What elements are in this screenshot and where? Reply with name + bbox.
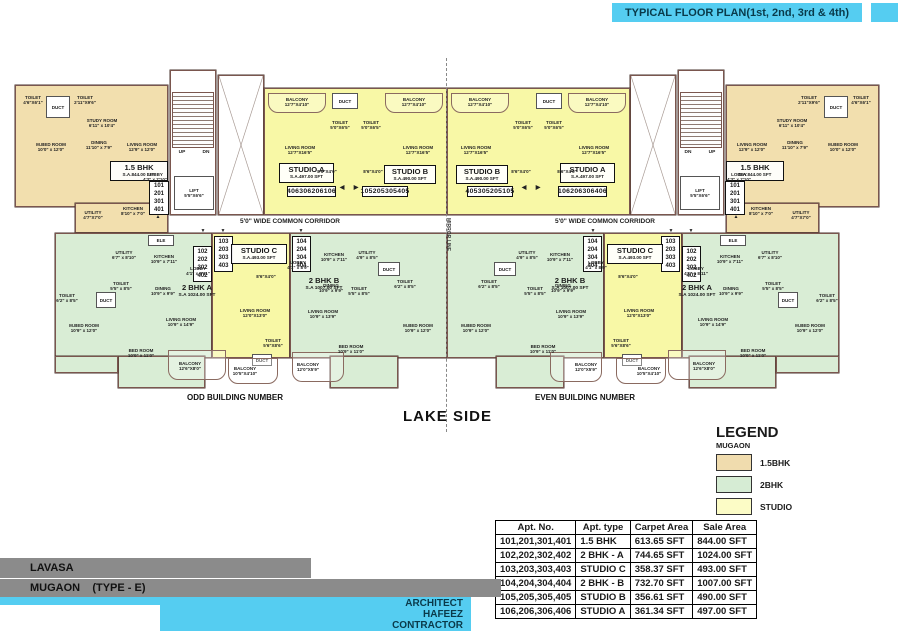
- room-label: M.BED ROOM 10'0" x 12'0": [28, 142, 74, 152]
- room-label: KITCHEN 10'9" x 7'11": [142, 254, 186, 264]
- room-label: BALCONY 12'7"X4'10": [268, 97, 326, 107]
- room-label: 8'6"X4'0": [508, 169, 534, 174]
- room-label: BALCONY 12'0"X5'9": [566, 362, 606, 372]
- room-label: BED ROOM 10'9" x 11'0": [328, 344, 374, 354]
- room-label: ▼: [684, 228, 698, 234]
- legend-label: 1.5BHK: [760, 458, 790, 468]
- room-label: STUDY ROOM 6'11" x 10'4": [80, 118, 124, 128]
- room-label: UTILITY 4'7"X7'0": [76, 210, 110, 220]
- room-label: KITCHEN 8'10" x 7'0": [110, 206, 156, 216]
- odd-building-label: ODD BUILDING NUMBER: [150, 393, 320, 402]
- model-bar: MUGAON (TYPE - E): [0, 579, 501, 597]
- room-label: TOILET 6'2" x 8'5": [472, 279, 506, 289]
- duct: DUCT: [46, 96, 70, 118]
- duct: DUCT: [536, 93, 562, 109]
- room-label: KITCHEN 10'9" x 7'11": [708, 254, 752, 264]
- legend-subheading: MUGAON: [716, 441, 779, 450]
- table-cell: 744.65 SFT: [630, 549, 693, 563]
- unit-title-studio-b: STUDIO B S.A.490.00 SFT: [456, 165, 508, 184]
- table-row: 101,201,301,4011.5 BHK613.65 SFT844.00 S…: [496, 535, 757, 549]
- room-label: 8'6"X4'0": [252, 274, 280, 279]
- duct: DUCT: [378, 262, 400, 276]
- table-cell: 105,205,305,405: [496, 591, 576, 605]
- table-cell: 101,201,301,401: [496, 535, 576, 549]
- room-label: LIVING ROOM 12'9" x 12'0": [728, 142, 776, 152]
- room-label: ▲: [152, 214, 164, 220]
- room-label: TOILET 5'0"X6'5": [507, 120, 539, 130]
- table-row: 105,205,305,405STUDIO B356.61 SFT490.00 …: [496, 591, 757, 605]
- room-label: ▼: [664, 228, 678, 234]
- stairs-left: [172, 92, 214, 148]
- lift: LIFT 5'5"X6'6": [174, 176, 214, 210]
- room-label: LIVING ROOM 12'0"X13'0": [616, 308, 662, 318]
- room-label: TOILET 5'0"X6'5": [324, 120, 356, 130]
- table-header-cell: Apt. type: [576, 521, 630, 535]
- table-cell: STUDIO A: [576, 605, 630, 619]
- room-label: TOILET 2'11"X9'6": [70, 95, 100, 105]
- room-label: ▼: [196, 228, 210, 234]
- table-cell: 613.65 SFT: [630, 535, 693, 549]
- room-label: TOILET 4'6"X6'1": [18, 95, 48, 105]
- table-cell: STUDIO C: [576, 563, 630, 577]
- room-label: BALCONY 12'0"X5'9": [288, 362, 328, 372]
- table-cell: STUDIO B: [576, 591, 630, 605]
- apartment-table-head: Apt. No.Apt. typeCarpet AreaSale Area: [496, 521, 757, 535]
- duct: DUCT: [778, 292, 798, 308]
- room-label: DINING 11'10" x 7'9": [776, 140, 814, 150]
- unit-stack: 103 203 303 403: [661, 236, 680, 272]
- shaft-right: [630, 75, 676, 215]
- room-label: ▼: [294, 228, 308, 234]
- room-label: LIVING ROOM 12'7"X16'5": [394, 145, 442, 155]
- room-label: ▼: [216, 228, 230, 234]
- mbed-bump: [55, 356, 118, 373]
- unit-number-strip: 406306206106: [287, 186, 336, 197]
- room-label: UTILITY 6'7" x 8'10": [106, 250, 142, 260]
- legend-label: STUDIO: [760, 502, 792, 512]
- room-label: ▶: [350, 185, 362, 192]
- legend: LEGEND MUGAON 1.5BHK2BHKSTUDIO: [716, 425, 779, 520]
- legend-heading: LEGEND: [716, 425, 779, 441]
- table-cell: 356.61 SFT: [630, 591, 693, 605]
- table-row: 102,202,302,4022 BHK - A744.65 SFT1024.0…: [496, 549, 757, 563]
- room-label: M.BED ROOM 10'0" x 12'0": [820, 142, 866, 152]
- room-label: 8'6"X4'0": [614, 274, 642, 279]
- room-label: LOBBY 4'1" x 8'9": [582, 260, 610, 270]
- room-label: TOILET 5'5" x 8'5": [756, 281, 790, 291]
- apartment-table: Apt. No.Apt. typeCarpet AreaSale Area 10…: [495, 520, 757, 619]
- table-cell: 1.5 BHK: [576, 535, 630, 549]
- project-bar: LAVASA: [0, 558, 311, 578]
- room-label: UTILITY 4'9" x 8'5": [510, 250, 544, 260]
- table-cell: 103,203,303,403: [496, 563, 576, 577]
- duct: DUCT: [824, 96, 848, 118]
- room-label: UP: [174, 150, 190, 156]
- shaft-left: [218, 75, 264, 215]
- room-label: TOILET 5'6"X8'6": [256, 338, 290, 348]
- legend-item: STUDIO: [716, 498, 779, 515]
- legend-swatch: [716, 454, 752, 471]
- ele: ELE: [148, 235, 174, 246]
- table-cell: 2 BHK - B: [576, 577, 630, 591]
- room-label: DINING 10'9" x 9'9": [544, 283, 582, 293]
- architect-line: CONTRACTOR: [392, 620, 463, 631]
- room-label: BALCONY 12'6"X8'0": [170, 361, 210, 371]
- room-label: LIVING ROOM 12'7"X16'5": [276, 145, 324, 155]
- room-label: TOILET 6'2" x 8'5": [388, 279, 422, 289]
- room-label: ◀: [518, 185, 530, 192]
- table-cell: 102,202,302,402: [496, 549, 576, 563]
- room-label: TOILET 5'5" x 8'5": [104, 281, 138, 291]
- room-label: DINING 10'9" x 9'9": [712, 286, 750, 296]
- unit-number-strip: 105205305405: [362, 186, 408, 197]
- room-label: DINING 10'9" x 9'9": [312, 283, 350, 293]
- room-label: 8'6"X4'0": [360, 169, 386, 174]
- room-label: DINING 10'9" x 9'9": [144, 286, 182, 296]
- mirror-line-label: MIRROR LINE: [445, 218, 451, 251]
- room-label: TOILET 6'2" x 8'5": [50, 293, 84, 303]
- room-label: STUDY ROOM 6'11" x 10'4": [770, 118, 814, 128]
- stairs-right: [680, 92, 722, 148]
- room-label: TOILET 5'6"X8'6": [604, 338, 638, 348]
- room-label: TOILET 4'6"X6'1": [846, 95, 876, 105]
- room-label: BALCONY 10'5"X4'10": [630, 366, 668, 376]
- table-cell: 1024.00 SFT: [693, 549, 757, 563]
- room-label: LIVING ROOM 12'9" x 12'0": [118, 142, 166, 152]
- room-label: BED ROOM 10'9" x 11'0": [118, 348, 164, 358]
- room-label: M.BED ROOM 10'9" x 12'0": [786, 323, 834, 333]
- room-label: UTILITY 4'7"X7'0": [784, 210, 818, 220]
- legend-items: 1.5BHK2BHKSTUDIO: [716, 454, 779, 515]
- unit-stack: 102 202 302 402: [193, 246, 212, 282]
- room-label: LIVING ROOM 12'7"X16'5": [570, 145, 618, 155]
- room-label: ▶: [532, 185, 544, 192]
- even-building-label: EVEN BUILDING NUMBER: [490, 393, 680, 402]
- mbed-bump: [776, 356, 839, 373]
- lift: LIFT 5'5"X6'6": [680, 176, 720, 210]
- room-label: UP: [704, 150, 720, 156]
- room-label: ▼: [586, 228, 600, 234]
- room-label: LIVING ROOM 10'9" x 13'9": [546, 309, 596, 319]
- table-cell: 104,204,304,404: [496, 577, 576, 591]
- room-label: TOILET 5'0"X6'5": [355, 120, 387, 130]
- floor-plan-sheet: TYPICAL FLOOR PLAN(1st, 2nd, 3rd & 4th) …: [0, 0, 900, 631]
- table-header-cell: Apt. No.: [496, 521, 576, 535]
- legend-item: 1.5BHK: [716, 454, 779, 471]
- legend-label: 2BHK: [760, 480, 783, 490]
- room-label: M.BED ROOM 10'9" x 12'0": [452, 323, 500, 333]
- room-label: BED ROOM 10'9" x 11'0": [520, 344, 566, 354]
- room-label: BALCONY 12'6"X8'0": [684, 361, 724, 371]
- duct: DUCT: [96, 292, 116, 308]
- unit-stack: 102 202 302 402: [682, 246, 701, 282]
- room-label: ◀: [336, 185, 348, 192]
- unit-title-studio-c: STUDIO C S.A.493.00 SFT: [607, 244, 663, 264]
- room-label: LOBBY 4'3" x 7'10": [141, 172, 169, 182]
- unit-number-strip: 405305205105: [467, 186, 513, 197]
- room-label: LOBBY 4'1" x 8'11": [184, 266, 212, 276]
- architect-line: ARCHITECT: [405, 598, 463, 609]
- room-label: LIVING ROOM 12'0"X13'0": [232, 308, 278, 318]
- table-cell: 490.00 SFT: [693, 591, 757, 605]
- room-label: DINING 11'10" x 7'9": [80, 140, 118, 150]
- table-row: 104,204,304,4042 BHK - B732.70 SFT1007.0…: [496, 577, 757, 591]
- apartment-table-body: 101,201,301,4011.5 BHK613.65 SFT844.00 S…: [496, 535, 757, 619]
- room-label: 8'6"X4'0": [314, 169, 340, 174]
- floor-plan: DUCTDUCTLIFT 5'5"X6'6"LIFT 5'5"X6'6"DUCT…: [0, 0, 900, 631]
- room-label: KITCHEN 8'10" x 7'0": [738, 206, 784, 216]
- unit-number-strip: 106206306406: [558, 186, 607, 197]
- duct: DUCT: [494, 262, 516, 276]
- room-label: LIVING ROOM 10'9" x 13'9": [298, 309, 348, 319]
- corridor-label-left: 5'0" WIDE COMMON CORRIDOR: [180, 218, 400, 225]
- table-cell: 493.00 SFT: [693, 563, 757, 577]
- table-cell: 497.00 SFT: [693, 605, 757, 619]
- room-label: BED ROOM 10'9" x 11'0": [730, 348, 776, 358]
- room-label: LIVING ROOM 10'9" x 14'9": [688, 317, 738, 327]
- lake-side-label: LAKE SIDE: [360, 408, 535, 425]
- unit-title-studio-c: STUDIO C S.A.493.00 SFT: [231, 244, 287, 264]
- room-label: TOILET 6'2" x 8'5": [810, 293, 844, 303]
- unit-title-studio-b: STUDIO B S.A.490.00 SFT: [384, 165, 436, 184]
- table-cell: 844.00 SFT: [693, 535, 757, 549]
- table-row: 106,206,306,406STUDIO A361.34 SFT497.00 …: [496, 605, 757, 619]
- room-label: DN: [198, 150, 214, 156]
- table-header-cell: Sale Area: [693, 521, 757, 535]
- architect-line: HAFEEZ: [423, 609, 463, 620]
- room-label: KITCHEN 10'9" x 7'11": [538, 252, 582, 262]
- table-cell: 106,206,306,406: [496, 605, 576, 619]
- table-row: 103,203,303,403STUDIO C358.37 SFT493.00 …: [496, 563, 757, 577]
- room-label: UTILITY 4'9" x 8'5": [350, 250, 384, 260]
- room-label: LIVING ROOM 12'7"X16'5": [452, 145, 500, 155]
- room-label: ▲: [730, 214, 742, 220]
- table-cell: 358.37 SFT: [630, 563, 693, 577]
- room-label: M.BED ROOM 10'9" x 12'0": [394, 323, 442, 333]
- room-label: BALCONY 10'5"X4'10": [226, 366, 264, 376]
- room-label: BALCONY 12'7"X4'10": [451, 97, 509, 107]
- table-cell: 732.70 SFT: [630, 577, 693, 591]
- table-cell: 2 BHK - A: [576, 549, 630, 563]
- legend-swatch: [716, 498, 752, 515]
- architect-block: ARCHITECTHAFEEZCONTRACTOR: [160, 597, 471, 631]
- room-label: M.BED ROOM 10'9" x 12'0": [60, 323, 108, 333]
- corridor-label-right: 5'0" WIDE COMMON CORRIDOR: [495, 218, 715, 225]
- ele: ELE: [720, 235, 746, 246]
- room-label: BALCONY 12'7"X4'10": [385, 97, 443, 107]
- room-label: BALCONY 12'7"X4'10": [568, 97, 626, 107]
- room-label: DN: [680, 150, 696, 156]
- table-cell: 1007.00 SFT: [693, 577, 757, 591]
- table-header-cell: Carpet Area: [630, 521, 693, 535]
- room-label: TOILET 2'11"X9'6": [794, 95, 824, 105]
- room-label: UTILITY 6'7" x 8'10": [752, 250, 788, 260]
- duct: DUCT: [332, 93, 358, 109]
- room-label: 8'6"X4'0": [554, 169, 580, 174]
- legend-swatch: [716, 476, 752, 493]
- room-label: LOBBY 4'1" x 8'11": [682, 266, 710, 276]
- room-label: LOBBY 4'1" x 8'9": [284, 260, 312, 270]
- legend-item: 2BHK: [716, 476, 779, 493]
- table-cell: 361.34 SFT: [630, 605, 693, 619]
- room-label: TOILET 5'0"X6'5": [538, 120, 570, 130]
- room-label: LIVING ROOM 10'9" x 14'9": [156, 317, 206, 327]
- room-label: LOBBY 4'3" x 7'10": [725, 172, 753, 182]
